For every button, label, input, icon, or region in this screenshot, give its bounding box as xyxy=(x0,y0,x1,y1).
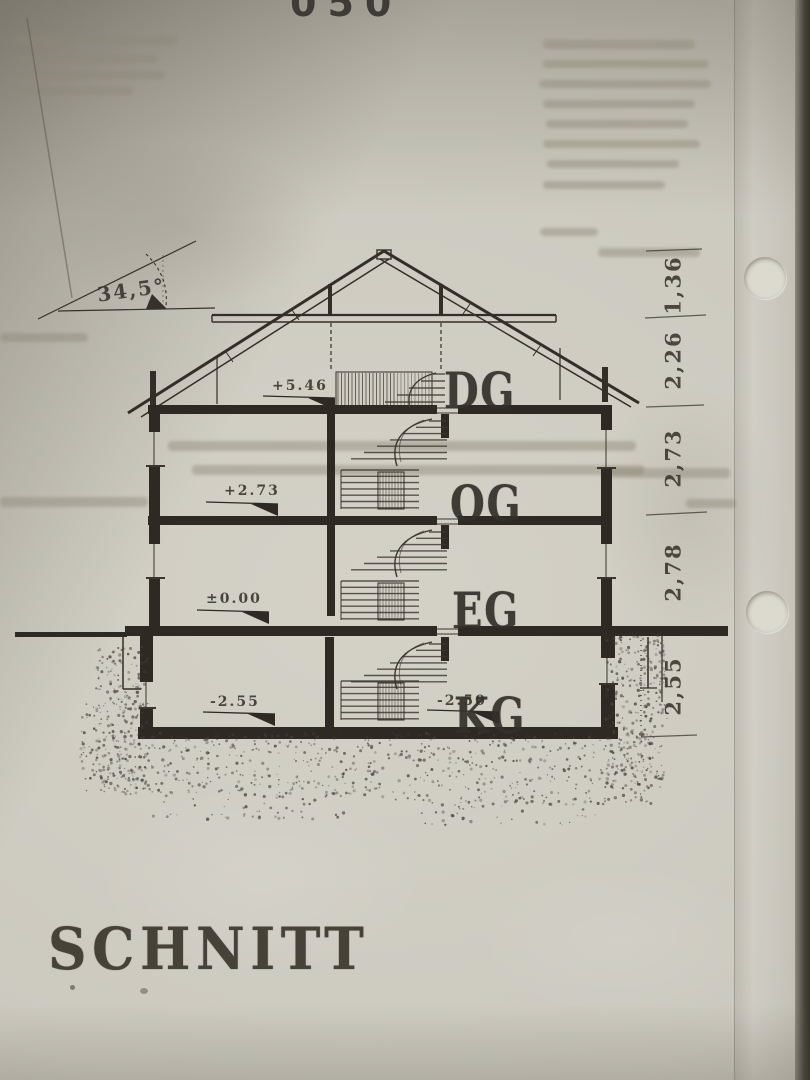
ink-speck xyxy=(70,985,75,990)
dimension-label-kg: 2,55 xyxy=(663,656,684,715)
dimension-label-og: 2,73 xyxy=(663,428,684,487)
level-label-og: +2.73 xyxy=(224,484,280,498)
dimension-label-eg: 2,78 xyxy=(663,542,684,601)
photographed-plan-sheet: 050 xyxy=(0,0,810,1080)
floor-label-kg: KG xyxy=(454,691,526,741)
paper-fold-line xyxy=(27,18,72,298)
dimension-label-roof: 2,26 xyxy=(663,330,684,389)
hole-punch-top xyxy=(744,257,786,299)
ink-speck xyxy=(140,988,148,994)
level-label-kg: -2.55 xyxy=(210,695,260,709)
hole-punch-bottom xyxy=(746,591,788,633)
level-label-eg: ±0.00 xyxy=(206,592,262,606)
floor-label-eg: EG xyxy=(452,586,520,636)
level-label-dg: +5.46 xyxy=(272,379,328,393)
level-markers xyxy=(197,396,499,726)
floor-slabs xyxy=(15,405,728,739)
schnitt-title: SCHNITT xyxy=(48,920,369,978)
staircase xyxy=(341,373,447,720)
floor-label-dg: DG xyxy=(444,366,516,416)
floor-label-og: OG xyxy=(450,479,522,529)
dimension-label-ridge: 1,36 xyxy=(663,255,684,314)
